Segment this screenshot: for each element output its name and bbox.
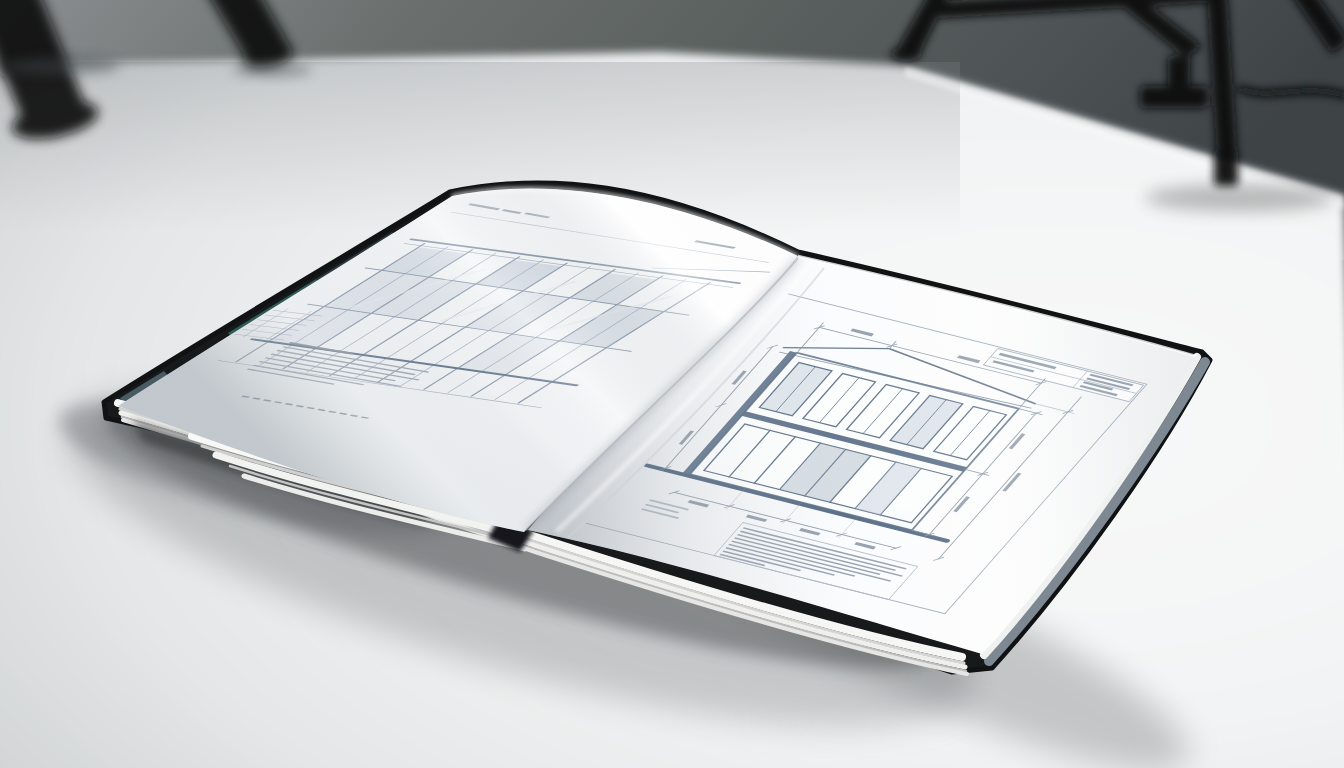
- tripod-left-shadow: [4, 57, 120, 75]
- tripod-left-foot-shadow: [232, 63, 312, 77]
- studio-photograph: [0, 0, 1344, 768]
- tripod-cable: [1238, 88, 1344, 96]
- tripod-right-shadow: [1145, 184, 1335, 212]
- scene-canvas: [0, 0, 1344, 768]
